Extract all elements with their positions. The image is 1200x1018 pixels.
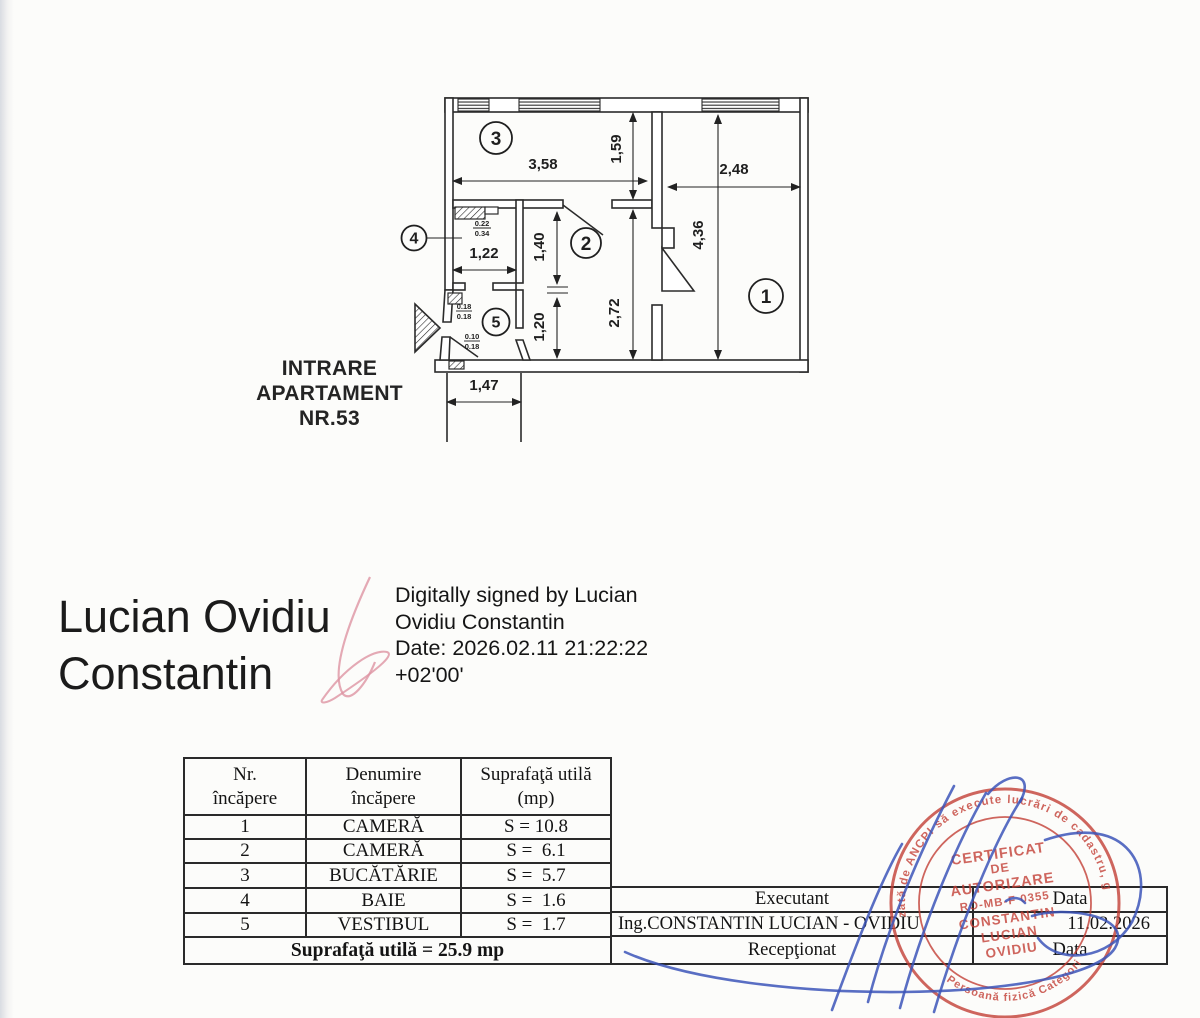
- cell-area: S = 1.6: [461, 888, 611, 913]
- table-row: 3 BUCĂTĂRIE S = 5.7: [184, 863, 611, 888]
- scanned-document-page: 3,58 2,48 1,22 1,47 1,59 4,36 2,72 1,40 …: [0, 0, 1200, 1018]
- window-band: [458, 99, 489, 111]
- cell-area: S = 5.7: [461, 863, 611, 888]
- vent-shaft-hatch: [455, 207, 485, 219]
- dim-entry-width: 1,47: [469, 377, 498, 394]
- dim-bath-width: 1,22: [469, 245, 498, 262]
- executant-name-row: Ing.CONSTANTIN LUCIAN - OVIDIU 11.02.202…: [611, 912, 1167, 936]
- header-nr: Nr. încăpere: [184, 758, 306, 815]
- room1-door-leaf: [662, 248, 694, 291]
- receptionat-label-cell: Recepţionat: [611, 936, 973, 964]
- dim-room1-height: 4,36: [690, 220, 707, 249]
- signature-name-line2: Constantin: [58, 645, 331, 702]
- dim-hall-lower: 1,20: [531, 312, 548, 341]
- table-row: 5 VESTIBUL S = 1.7: [184, 913, 611, 937]
- signature-detail-line4: +02'00': [395, 662, 648, 689]
- receptionat-row: Recepţionat Data: [611, 936, 1167, 964]
- dim-room1-width: 2,48: [719, 161, 748, 178]
- cell-nr: 3: [184, 863, 306, 888]
- digital-signature-details: Digitally signed by Lucian Ovidiu Consta…: [395, 582, 648, 688]
- cell-name: BAIE: [306, 888, 461, 913]
- cell-area: S = 1.7: [461, 913, 611, 937]
- cell-nr: 4: [184, 888, 306, 913]
- dim-room2-height: 2,72: [606, 298, 623, 327]
- room2-door-leaf: [563, 205, 603, 235]
- table-total-row: Suprafaţă utilă = 25.9 mp: [184, 937, 611, 964]
- data-label-cell-bottom: Data: [973, 936, 1167, 964]
- signature-name-line1: Lucian Ovidiu: [58, 588, 331, 645]
- room-number-5: 5: [492, 315, 501, 332]
- digital-signature-name: Lucian Ovidiu Constantin: [58, 588, 331, 702]
- header-nr-line2: încăpere: [185, 787, 305, 811]
- header-denumire: Denumire încăpere: [306, 758, 461, 815]
- stamp-line2: DE: [990, 860, 1011, 877]
- signature-detail-line2: Ovidiu Constantin: [395, 609, 648, 636]
- executant-table: Executant Data Ing.CONSTANTIN LUCIAN - O…: [610, 886, 1168, 965]
- cell-name: VESTIBUL: [306, 913, 461, 937]
- dim-hall-upper: 1,40: [531, 232, 548, 261]
- entrance-label-line2: APARTAMENT: [252, 381, 407, 406]
- dim-kitchen-width: 3,58: [528, 156, 557, 173]
- entrance-label-line3: NR.53: [252, 406, 407, 431]
- header-denumire-line1: Denumire: [307, 763, 460, 787]
- header-suprafata-line2: (mp): [462, 787, 610, 811]
- vent-notch: [485, 207, 498, 214]
- header-nr-line1: Nr.: [185, 763, 305, 787]
- vent-shaft-hatch: [449, 361, 464, 369]
- entrance-arrow-icon: [415, 304, 440, 352]
- header-suprafata: Suprafaţă utilă (mp): [461, 758, 611, 815]
- data-label-cell: Data: [973, 887, 1167, 912]
- svg-text:0.22: 0.22: [475, 219, 490, 228]
- room-number-1: 1: [761, 287, 772, 308]
- svg-text:0.10: 0.10: [465, 332, 480, 341]
- table-header-row: Nr. încăpere Denumire încăpere Suprafaţă…: [184, 758, 611, 815]
- page-left-edge-shadow: [0, 0, 14, 1018]
- cell-name: CAMERĂ: [306, 815, 461, 839]
- room-number-3: 3: [491, 129, 502, 150]
- executant-name-cell: Ing.CONSTANTIN LUCIAN - OVIDIU: [611, 912, 973, 936]
- cell-nr: 5: [184, 913, 306, 937]
- header-suprafata-line1: Suprafaţă utilă: [462, 763, 610, 787]
- table-row: 2 CAMERĂ S = 6.1: [184, 839, 611, 863]
- cell-area: S = 6.1: [461, 839, 611, 863]
- signature-flourish-icon: [315, 572, 400, 707]
- svg-text:0.18: 0.18: [465, 342, 480, 351]
- cell-name: BUCĂTĂRIE: [306, 863, 461, 888]
- cell-nr: 2: [184, 839, 306, 863]
- svg-text:0.18: 0.18: [457, 312, 472, 321]
- window-band: [702, 99, 779, 111]
- header-denumire-line2: încăpere: [307, 787, 460, 811]
- cell-nr: 1: [184, 815, 306, 839]
- table-row: 4 BAIE S = 1.6: [184, 888, 611, 913]
- entrance-label-line1: INTRARE: [252, 356, 407, 381]
- total-area-cell: Suprafaţă utilă = 25.9 mp: [184, 937, 611, 964]
- date-value-cell: 11.02.2026: [973, 912, 1167, 936]
- window-band: [519, 99, 600, 111]
- svg-text:0.34: 0.34: [475, 229, 490, 238]
- signature-detail-line3: Date: 2026.02.11 21:22:22: [395, 635, 648, 662]
- entrance-label: INTRARE APARTAMENT NR.53: [252, 356, 407, 431]
- floor-plan: 3,58 2,48 1,22 1,47 1,59 4,36 2,72 1,40 …: [400, 85, 830, 450]
- room-area-table: Nr. încăpere Denumire încăpere Suprafaţă…: [183, 757, 612, 965]
- cell-name: CAMERĂ: [306, 839, 461, 863]
- stamp-line1: CERTIFICAT: [950, 840, 1046, 869]
- signature-detail-line1: Digitally signed by Lucian: [395, 582, 648, 609]
- executant-header-row: Executant Data: [611, 887, 1167, 912]
- svg-text:0.18: 0.18: [457, 302, 472, 311]
- table-row: 1 CAMERĂ S = 10.8: [184, 815, 611, 839]
- room-number-4: 4: [410, 231, 419, 248]
- cell-area: S = 10.8: [461, 815, 611, 839]
- room-number-2: 2: [581, 234, 592, 255]
- dim-kitchen-height: 1,59: [608, 134, 625, 163]
- executant-label-cell: Executant: [611, 887, 973, 912]
